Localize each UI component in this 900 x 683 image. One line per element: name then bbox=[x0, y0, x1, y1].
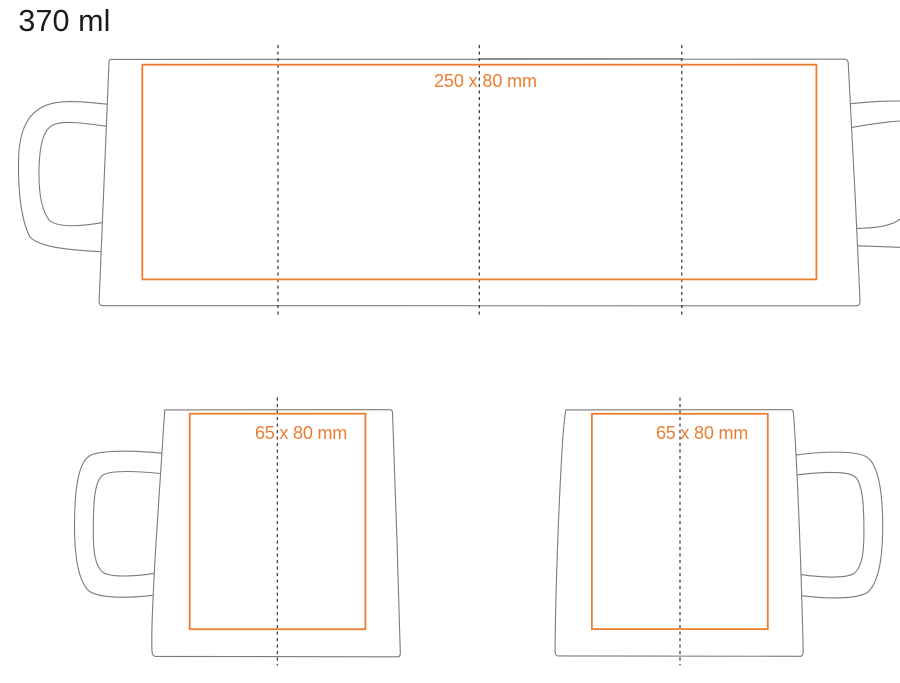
svg-text:370 ml: 370 ml bbox=[18, 4, 110, 38]
svg-text:250 x 80 mm: 250 x 80 mm bbox=[434, 71, 537, 91]
svg-text:65 x 80 mm: 65 x 80 mm bbox=[255, 423, 347, 443]
svg-text:65 x 80 mm: 65 x 80 mm bbox=[656, 423, 748, 443]
